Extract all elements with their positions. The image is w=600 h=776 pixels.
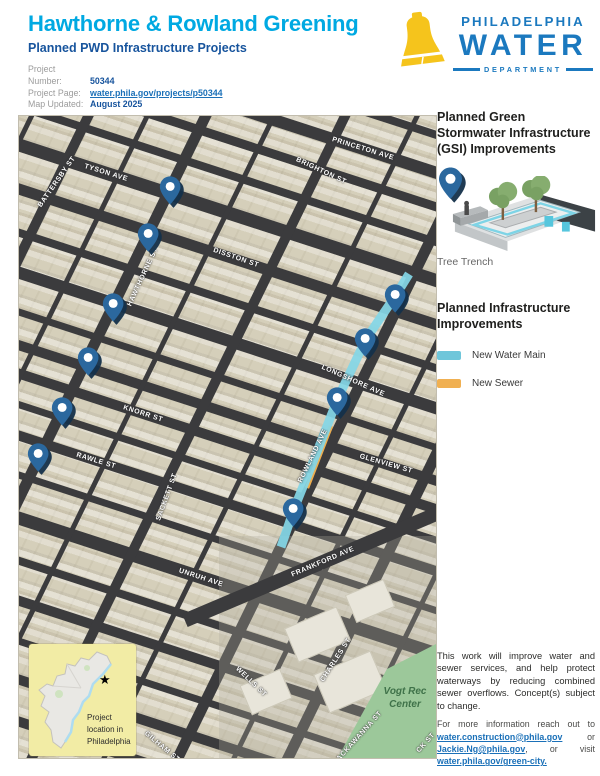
logo-dash-right xyxy=(566,68,593,70)
project-number-value: 50344 xyxy=(90,76,114,86)
legend-row-new-sewer: New Sewer xyxy=(437,378,595,389)
inset-caption-line: Project xyxy=(87,712,131,724)
contact-note-prefix: For more information reach out to xyxy=(437,719,595,729)
gsi-location-pin xyxy=(101,292,128,331)
tree-trench-figure xyxy=(437,174,595,254)
legend-swatch xyxy=(437,379,461,388)
map-updated-value: August 2025 xyxy=(90,99,142,109)
legend-label: New Water Main xyxy=(472,350,546,361)
pwd-logo-wordmark: PHILADELPHIA WATER DEPARTMENT xyxy=(453,14,593,74)
project-number-label: Project Number: xyxy=(28,64,90,88)
project-page-row: Project Page:water.phila.gov/projects/p5… xyxy=(28,88,223,100)
gsi-location-pin xyxy=(383,283,410,322)
construction-email-link[interactable]: water.construction@phila.gov xyxy=(437,732,562,742)
gsi-location-pin xyxy=(353,327,380,366)
logo-line-philadelphia: PHILADELPHIA xyxy=(453,14,593,29)
legend: New Water MainNew Sewer xyxy=(437,350,595,389)
pwd-logo: PHILADELPHIA WATER DEPARTMENT xyxy=(393,8,595,80)
philadelphia-inset-map: ★ Projectlocation inPhiladelphia xyxy=(29,644,136,756)
tree-trench-illustration xyxy=(451,176,597,256)
sidebar-notes: This work will improve water and sewer s… xyxy=(437,650,595,776)
page-subtitle: Planned PWD Infrastructure Projects xyxy=(28,41,247,55)
sidebar: Planned Green Stormwater Infrastructure … xyxy=(437,110,595,406)
project-location-star: ★ xyxy=(99,672,111,687)
contact-note-mid2: , or visit xyxy=(525,744,595,754)
page-title: Hawthorne & Rowland Greening xyxy=(28,11,359,37)
infrastructure-heading: Planned Infrastructure Improvements xyxy=(437,300,595,333)
inset-caption-line: location in xyxy=(87,724,131,736)
flyer-page: Hawthorne & Rowland Greening Planned PWD… xyxy=(0,0,600,776)
project-page-label: Project Page: xyxy=(28,88,90,100)
gsi-heading: Planned Green Stormwater Infrastructure … xyxy=(437,110,595,158)
legend-swatch xyxy=(437,351,461,360)
contact-note-mid1: or xyxy=(562,732,595,742)
legend-row-new-water-main: New Water Main xyxy=(437,350,595,361)
project-page-link[interactable]: water.phila.gov/projects/p50344 xyxy=(90,88,223,98)
gsi-location-pin xyxy=(158,175,185,214)
logo-line-water: WATER xyxy=(453,29,593,63)
gsi-location-pin xyxy=(76,346,103,385)
liberty-bell-icon xyxy=(393,10,447,77)
contact-note: For more information reach out to water.… xyxy=(437,718,595,767)
inset-caption: Projectlocation inPhiladelphia xyxy=(87,712,131,748)
gsi-location-pin xyxy=(325,386,352,425)
inset-caption-line: Philadelphia xyxy=(87,736,131,748)
project-map: TYSON AVEPRINCETON AVEBRIGHTON STDISSTON… xyxy=(18,115,437,759)
logo-line-department: DEPARTMENT xyxy=(453,65,593,74)
tree-trench-pin-icon xyxy=(437,166,467,209)
gsi-location-pin xyxy=(281,497,308,536)
map-updated-label: Map Updated: xyxy=(28,99,90,111)
map-updated-row: Map Updated:August 2025 xyxy=(28,99,223,111)
gsi-location-pin xyxy=(136,222,163,261)
green-city-link[interactable]: water.phila.gov/green-city. xyxy=(437,756,547,766)
project-description: This work will improve water and sewer s… xyxy=(437,650,595,712)
legend-label: New Sewer xyxy=(472,378,523,389)
contact-email-link[interactable]: Jackie.Ng@phila.gov xyxy=(437,744,525,754)
project-number-row: Project Number:50344 xyxy=(28,64,223,88)
gsi-location-pin xyxy=(50,396,77,435)
project-info: Project Number:50344 Project Page:water.… xyxy=(28,64,223,111)
gsi-location-pin xyxy=(26,442,53,481)
logo-dash-left xyxy=(453,68,480,70)
tree-trench-caption: Tree Trench xyxy=(437,256,595,268)
